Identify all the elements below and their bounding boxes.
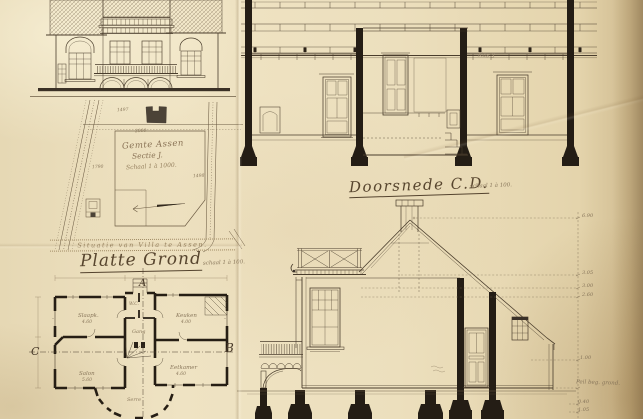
section-cd-drawing <box>241 0 633 172</box>
room-label-keuken: Keuken <box>176 313 197 319</box>
section-side-bays <box>252 54 567 140</box>
attic-joist-grid <box>241 2 597 58</box>
right-small-window <box>512 317 528 340</box>
level-label: 1.05 <box>578 407 589 413</box>
interior-columns <box>457 278 528 400</box>
level-label: 0.40 <box>578 399 589 405</box>
room-label-serre: Serre <box>127 397 141 403</box>
section-marker-c: C <box>31 345 39 358</box>
level-label: 3.05 <box>582 270 593 276</box>
foundation-piers <box>255 388 504 419</box>
site-road-left <box>55 100 103 250</box>
site-plan-drawing <box>33 100 245 252</box>
room-dim: 4.00 <box>181 320 191 325</box>
chimney <box>396 200 423 293</box>
pencil-note: Kas 3 <box>478 51 495 59</box>
level-label: 6.90 <box>582 213 593 219</box>
elevation-ground <box>30 88 236 97</box>
room-dim: 4.60 <box>82 320 92 325</box>
level-label: 1.00 <box>580 355 591 361</box>
scanned-drawing-sheet: Gemte Assen Sectie J. Schaal 1 à 1000. 1… <box>0 0 643 419</box>
room-dim: 4.60 <box>176 372 186 377</box>
room-label-wc: W.C. <box>129 302 139 307</box>
roof-terrace-railing <box>291 249 366 275</box>
level-label: 2.60 <box>582 292 593 298</box>
room-label-slaapk: Slaapk. <box>78 313 99 319</box>
site-building-footprint <box>146 107 167 124</box>
site-plan-line2: Sectie J. <box>132 150 163 161</box>
level-label: 3.00 <box>582 283 593 289</box>
parcel-number: 1790 <box>92 165 104 170</box>
main-body <box>296 277 553 390</box>
elevation-windows <box>58 37 205 83</box>
plan-details <box>29 268 233 417</box>
parcel-number: 3000 <box>135 129 147 134</box>
room-label-eetkamer: Eetkamer <box>170 365 197 371</box>
side-balcony <box>259 342 303 389</box>
parcel-number: 1497 <box>117 108 129 113</box>
room-label-salon: Salon <box>79 371 95 377</box>
section-cd-scale-note: schaal 1 à 100. <box>470 182 512 189</box>
room-dim: 5.60 <box>82 378 92 383</box>
room-label-gang: Gang <box>132 329 145 335</box>
section-center-room <box>363 28 468 155</box>
site-outbuilding <box>86 199 100 217</box>
parcel-number: 1498 <box>193 174 205 179</box>
north-arrow-icon <box>133 204 185 213</box>
elevation-portico <box>99 19 174 34</box>
section-marker-a: A <box>139 278 146 289</box>
side-section-drawing <box>231 198 635 419</box>
elevation-balcony <box>94 65 178 89</box>
section-cd-title: Doorsnede C.D. <box>349 174 489 198</box>
